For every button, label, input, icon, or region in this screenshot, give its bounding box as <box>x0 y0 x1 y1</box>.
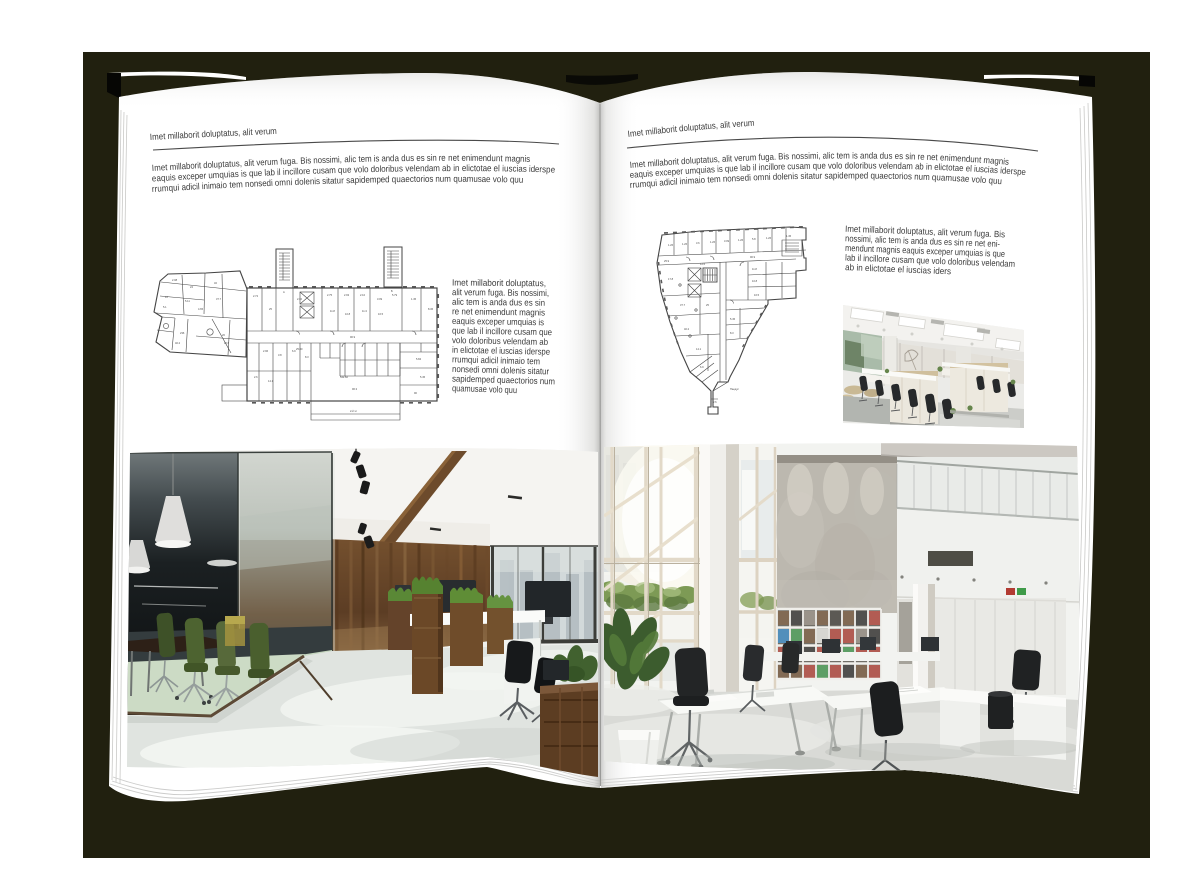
svg-text:2-й эт: 2-й эт <box>350 409 358 413</box>
svg-text:3.6: 3.6 <box>696 241 700 245</box>
svg-text:A: A <box>283 290 285 294</box>
svg-text:14.1: 14.1 <box>268 379 274 383</box>
svg-text:10.6: 10.6 <box>224 341 230 345</box>
svg-text:12.6: 12.6 <box>700 262 706 266</box>
svg-text:1.45: 1.45 <box>411 297 417 301</box>
svg-text:2.6: 2.6 <box>254 375 258 379</box>
svg-text:1.45: 1.45 <box>786 234 792 238</box>
svg-text:2.75: 2.75 <box>327 293 333 297</box>
svg-text:25.00: 25.00 <box>296 347 303 351</box>
svg-text:11.3: 11.3 <box>362 309 367 313</box>
svg-text:2.08: 2.08 <box>172 278 178 282</box>
svg-text:2.93: 2.93 <box>344 293 350 297</box>
svg-text:3.09: 3.09 <box>724 239 730 243</box>
svg-text:5.8: 5.8 <box>752 237 756 241</box>
svg-text:90.9: 90.9 <box>350 335 356 339</box>
svg-text:8.3: 8.3 <box>730 331 734 335</box>
svg-text:3.09: 3.09 <box>377 297 383 301</box>
svg-text:25.9: 25.9 <box>664 259 670 263</box>
svg-text:5.11: 5.11 <box>185 299 190 303</box>
svg-text:5.79: 5.79 <box>392 293 398 297</box>
svg-text:8.3: 8.3 <box>305 355 309 359</box>
svg-text:eaquis exceper umquias is: eaquis exceper umquias is <box>452 316 545 327</box>
svg-text:2.10: 2.10 <box>297 297 303 301</box>
svg-text:2.10: 2.10 <box>360 293 366 297</box>
svg-text:5.45: 5.45 <box>730 317 736 321</box>
svg-text:37.7: 37.7 <box>216 297 222 301</box>
svg-text:5.1: 5.1 <box>163 305 167 309</box>
svg-text:1.26: 1.26 <box>738 238 744 242</box>
svg-text:5.45: 5.45 <box>420 375 426 379</box>
svg-text:6.9: 6.9 <box>700 365 704 369</box>
svg-text:1.26: 1.26 <box>710 240 716 244</box>
svg-text:11.8: 11.8 <box>330 309 335 313</box>
svg-text:10.8: 10.8 <box>345 312 351 316</box>
svg-text:17.8: 17.8 <box>668 277 674 281</box>
svg-text:16.5: 16.5 <box>378 312 384 316</box>
svg-text:1.26: 1.26 <box>766 236 772 240</box>
svg-text:quamusae volo quu: quamusae volo quu <box>452 383 517 395</box>
svg-text:alit verum fuga. Bis nossimi,: alit verum fuga. Bis nossimi, <box>452 287 549 298</box>
svg-text:16.5: 16.5 <box>754 293 760 297</box>
svg-text:alic tem is anda dus es sin: alic tem is anda dus es sin <box>452 297 545 308</box>
svg-text:96.3: 96.3 <box>352 387 358 391</box>
svg-text:542.82: 542.82 <box>340 375 348 379</box>
svg-text:236: 236 <box>180 331 185 335</box>
svg-text:1.26: 1.26 <box>682 242 688 246</box>
svg-text:2.6: 2.6 <box>713 400 717 404</box>
svg-text:40.2: 40.2 <box>175 341 181 345</box>
svg-text:10.8: 10.8 <box>752 279 758 283</box>
svg-text:1.26: 1.26 <box>668 243 674 247</box>
svg-text:3.8: 3.8 <box>278 353 282 357</box>
svg-text:8.36: 8.36 <box>428 307 434 311</box>
svg-text:14.1: 14.1 <box>696 347 702 351</box>
svg-text:4.65: 4.65 <box>198 307 204 311</box>
svg-text:Imet millaborit doluptatus,: Imet millaborit doluptatus, <box>452 278 546 289</box>
svg-text:37.7: 37.7 <box>680 303 686 307</box>
svg-text:Б: Б <box>391 289 393 293</box>
svg-text:11.8: 11.8 <box>752 267 757 271</box>
svg-text:2.96: 2.96 <box>263 349 269 353</box>
svg-text:40.2: 40.2 <box>684 327 690 331</box>
svg-text:Пандус: Пандус <box>730 387 740 391</box>
svg-text:re net enimendunt magnis: re net enimendunt magnis <box>452 306 546 317</box>
svg-text:2.72: 2.72 <box>253 294 259 298</box>
svg-text:5.84: 5.84 <box>416 357 422 361</box>
svg-text:90.9: 90.9 <box>750 255 756 259</box>
